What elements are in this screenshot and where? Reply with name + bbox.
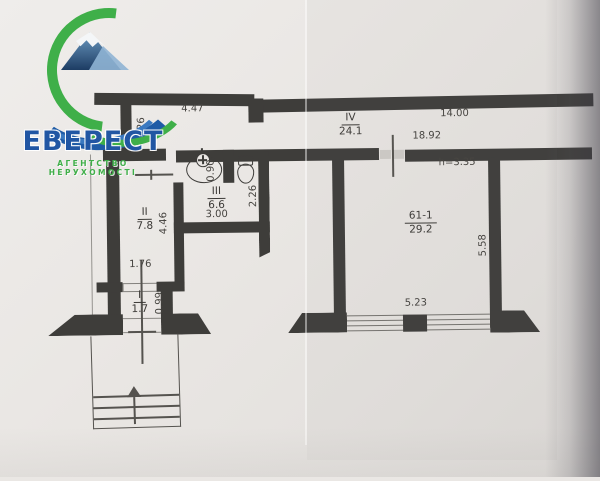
- room-area: 1.7: [119, 302, 161, 315]
- porch-step: [94, 416, 180, 420]
- wall-bath-partition: [223, 150, 234, 183]
- photo-vignette: [0, 427, 600, 477]
- dim-bath-depth: 2.26: [248, 179, 259, 213]
- logo-subtitle: АГЕНТСТВО НЕРУХОМОСТІ: [15, 159, 171, 177]
- room-number: III: [208, 185, 225, 199]
- wall-entrance-left: [48, 314, 123, 336]
- wall-top-stub: [248, 98, 263, 122]
- logo-title: ЕВЕРЕСТ: [15, 126, 171, 157]
- room-label-I: I 1.7: [119, 289, 161, 316]
- wall-bath-bottom: [174, 221, 270, 233]
- wall-entrance-right: [161, 313, 211, 335]
- porch-outline: [90, 334, 181, 430]
- room-label-II: II 7.8: [123, 206, 167, 233]
- up-arrow-icon: [133, 397, 136, 424]
- faucet-spout: [201, 148, 203, 153]
- agency-logo: ЕВЕРЕСТ АГЕНТСТВО НЕРУХОМОСТІ: [5, 4, 177, 180]
- porch-step: [93, 405, 179, 409]
- up-arrow-icon: [127, 386, 141, 397]
- outer-face-line: [90, 155, 93, 336]
- wall-bath-right: [258, 151, 270, 257]
- room-label-III: III 6.6: [194, 185, 238, 212]
- photo-shadow-right: [545, 0, 600, 477]
- room-area: 6.6: [195, 198, 239, 211]
- room-number: II: [137, 206, 151, 220]
- dim-sink-recess: 0.90: [205, 154, 216, 188]
- room-area: 7.8: [123, 219, 167, 232]
- paper-fold-tint: [307, 0, 557, 460]
- sink-icon: [186, 156, 222, 183]
- room-number: I: [134, 289, 145, 303]
- dim-entry-opening: 1.76: [117, 259, 163, 271]
